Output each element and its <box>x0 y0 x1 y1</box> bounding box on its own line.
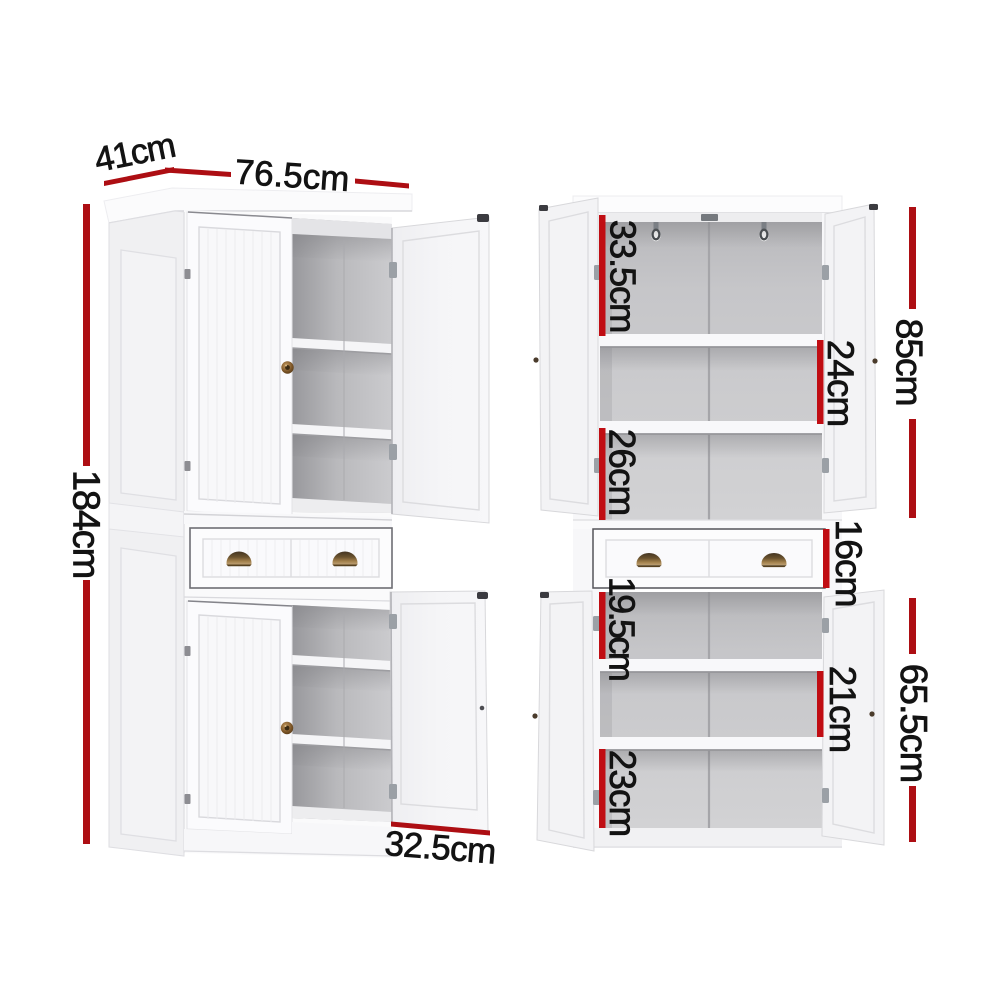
svg-text:184cm: 184cm <box>64 470 106 578</box>
svg-text:23cm: 23cm <box>602 750 643 836</box>
svg-text:65.5cm: 65.5cm <box>892 664 934 783</box>
svg-text:21cm: 21cm <box>822 666 863 752</box>
svg-text:26cm: 26cm <box>602 429 643 515</box>
svg-text:85cm: 85cm <box>889 319 931 406</box>
svg-text:19.5cm: 19.5cm <box>601 577 642 680</box>
svg-text:33.5cm: 33.5cm <box>602 220 643 333</box>
svg-text:24cm: 24cm <box>820 340 861 426</box>
svg-text:76.5cm: 76.5cm <box>234 152 351 199</box>
svg-text:16cm: 16cm <box>828 520 870 607</box>
